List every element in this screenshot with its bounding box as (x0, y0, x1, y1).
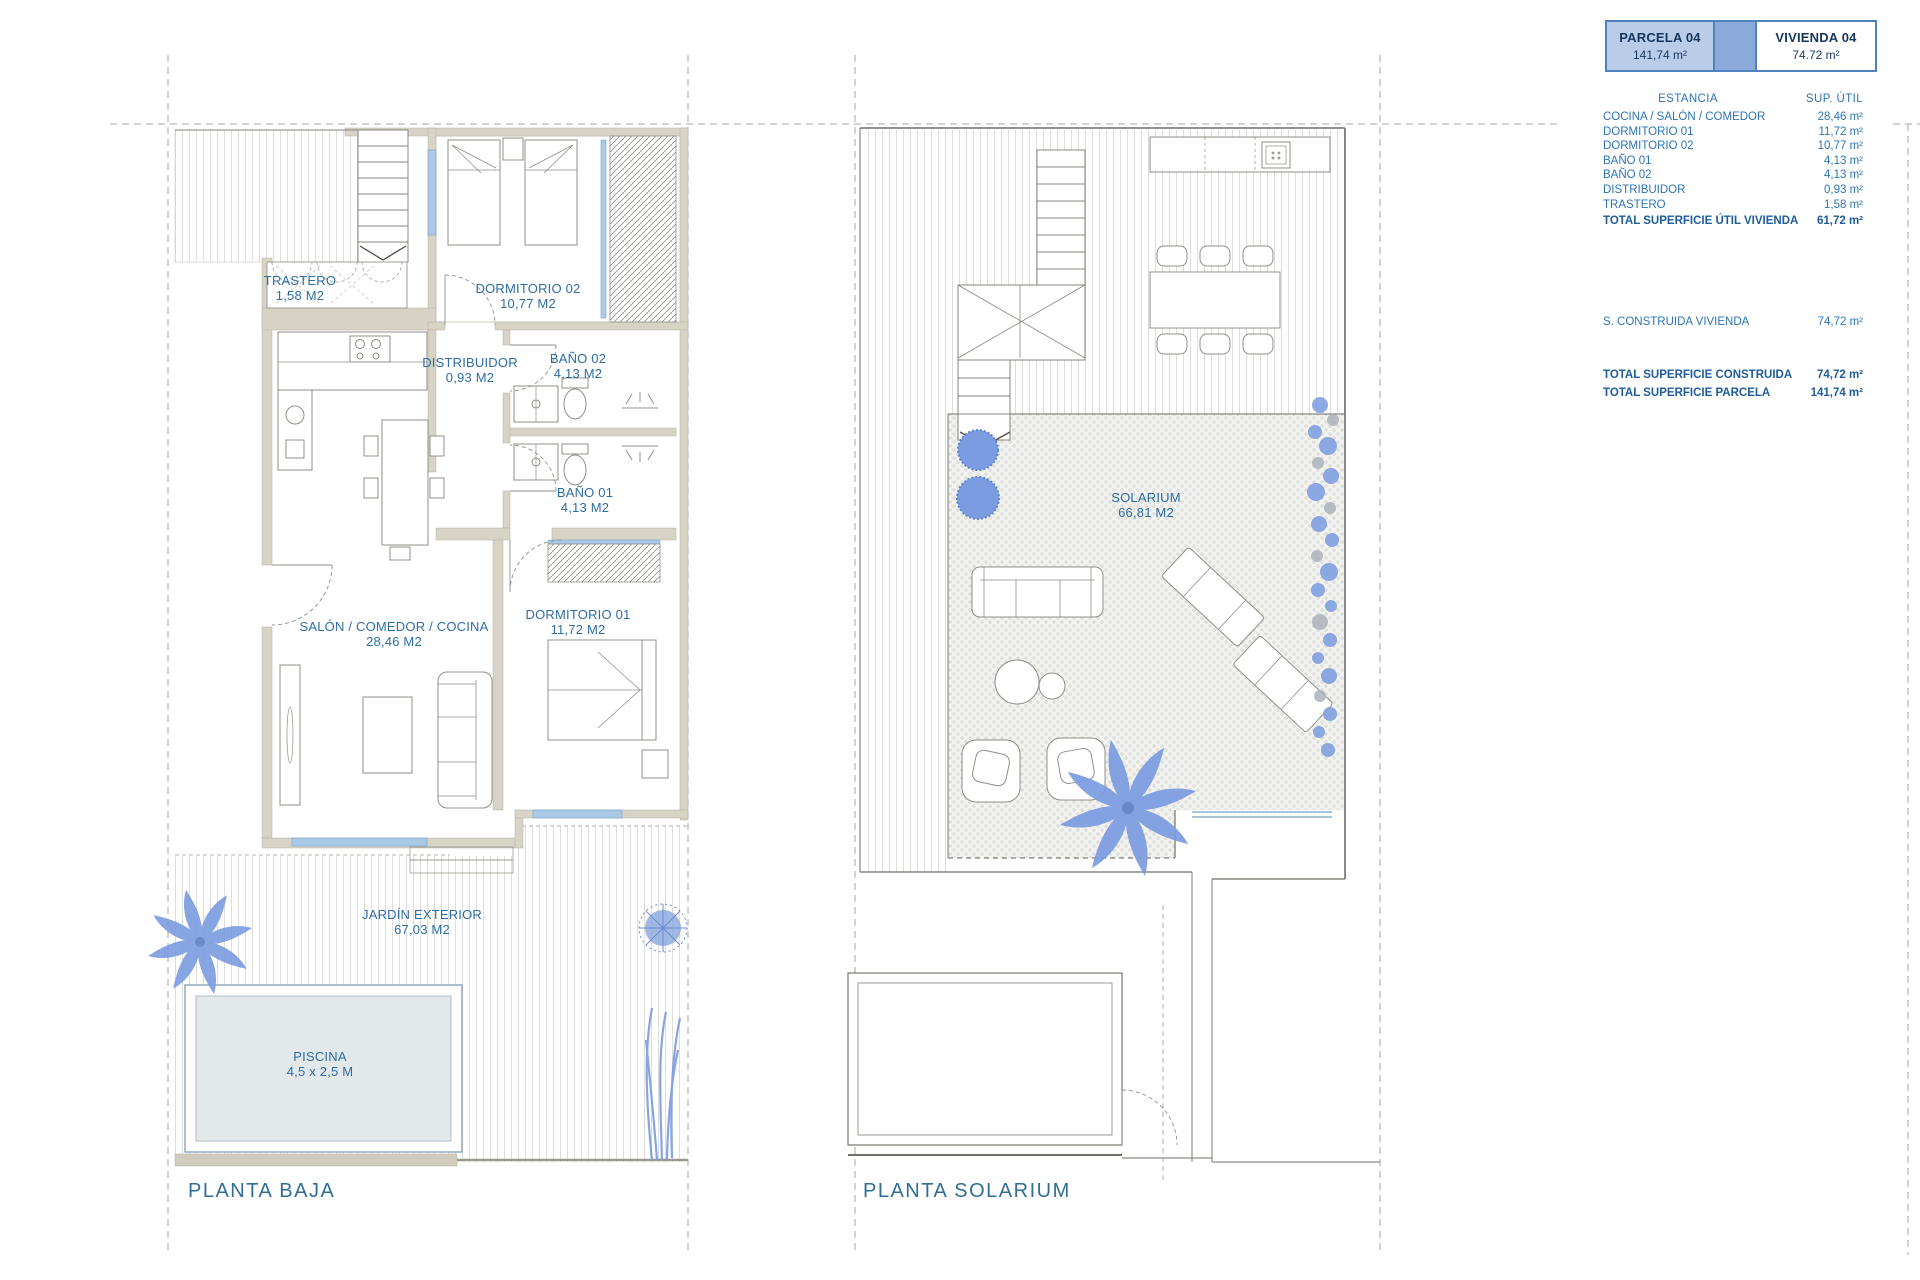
label-distribuidor: DISTRIBUIDOR 0,93 M2 (422, 355, 518, 385)
shower-head (622, 392, 658, 408)
window (533, 810, 622, 818)
table-row: DORMITORIO 02 10,77 m² (1603, 139, 1863, 154)
staircase-ground (358, 130, 408, 262)
room-name: SOLARIUM (1111, 490, 1181, 505)
vivienda-area: 74.72 m² (1757, 48, 1875, 62)
total-util-row: TOTAL SUPERFICIE ÚTIL VIVIENDA 61,72 m² (1603, 213, 1863, 230)
round-table (995, 660, 1039, 704)
label-trastero: TRASTERO 1,58 M2 (264, 273, 336, 303)
label-solarium: SOLARIUM 66,81 M2 (1111, 490, 1181, 520)
toilet (564, 455, 586, 485)
table-row: DISTRIBUIDOR 0,93 m² (1603, 183, 1863, 198)
window (428, 150, 436, 235)
total-parcela-row: TOTAL SUPERFICIE PARCELA 141,74 m² (1603, 384, 1863, 402)
window (292, 838, 427, 846)
planta-baja-title: PLANTA BAJA (188, 1180, 335, 1203)
bathroom-02 (514, 378, 658, 422)
outdoor-counter (1150, 137, 1330, 172)
closet-rail (601, 140, 606, 318)
glass-railing (1192, 812, 1332, 817)
table-row: COCINA / SALÓN / COMEDOR 28,46 m² (1603, 110, 1863, 125)
nightstand (642, 750, 668, 778)
toilet (564, 389, 586, 419)
room-area: 66,81 M2 (1111, 505, 1181, 520)
label-bano02: BAÑO 02 4,13 M2 (550, 351, 606, 381)
room-area: 28,46 M2 (300, 634, 489, 649)
coffee-table (363, 697, 412, 773)
plot-header-box: PARCELA 04 141,74 m² VIVIENDA 04 74.72 m… (1605, 20, 1877, 72)
totals-block: TOTAL SUPERFICIE CONSTRUIDA 74,72 m² TOT… (1603, 366, 1863, 402)
dining-table-ground (364, 420, 444, 560)
pool-void-below (848, 973, 1122, 1145)
room-name: JARDÍN EXTERIOR (362, 907, 482, 922)
room-area: 1,58 M2 (264, 288, 336, 303)
stove (350, 336, 390, 362)
label-piscina: PISCINA 4,5 x 2,5 M (287, 1049, 354, 1079)
tv-unit (280, 665, 300, 805)
bedroom-01 (548, 640, 668, 778)
room-area: 10,77 M2 (476, 296, 581, 311)
vivienda-label: VIVIENDA 04 (1757, 30, 1875, 45)
wardrobe-rail (548, 540, 660, 544)
parcela-cell: PARCELA 04 141,74 m² (1607, 22, 1715, 70)
room-name: TRASTERO (264, 273, 336, 288)
label-bano01: BAÑO 01 4,13 M2 (557, 485, 613, 515)
construida-row: S. CONSTRUIDA VIVIENDA 74,72 m² (1603, 316, 1863, 328)
room-area: 4,13 M2 (557, 500, 613, 515)
room-name: DISTRIBUIDOR (422, 355, 518, 370)
shower-head (622, 446, 658, 462)
room-name: BAÑO 02 (550, 351, 606, 366)
nightstand (503, 138, 523, 160)
label-salon: SALÓN / COMEDOR / COCINA 28,46 M2 (300, 619, 489, 649)
door-swing-solarium (1122, 1090, 1177, 1145)
garden-deck-right (515, 826, 685, 1162)
room-name: PISCINA (287, 1049, 354, 1064)
room-name: DORMITORIO 01 (526, 607, 631, 622)
bathroom-01 (514, 444, 658, 485)
wardrobe-hatched (610, 136, 676, 322)
vivienda-cell: VIVIENDA 04 74.72 m² (1757, 22, 1875, 70)
room-name: BAÑO 01 (557, 485, 613, 500)
room-area: 4,13 M2 (550, 366, 606, 381)
dining-set-solarium (1150, 246, 1280, 354)
sofa (438, 672, 492, 808)
room-area: 11,72 M2 (526, 622, 631, 637)
label-jardin: JARDÍN EXTERIOR 67,03 M2 (362, 907, 482, 937)
room-name: DORMITORIO 02 (476, 281, 581, 296)
bed-single-1 (448, 140, 500, 245)
parcela-area: 141,74 m² (1607, 48, 1713, 62)
room-name: SALÓN / COMEDOR / COCINA (300, 619, 489, 634)
surface-table-header: ESTANCIA SUP. ÚTIL (1603, 92, 1863, 107)
round-table-small (1039, 673, 1065, 699)
label-dormitorio01: DORMITORIO 01 11,72 M2 (526, 607, 631, 637)
col-sup-util: SUP. ÚTIL (1773, 92, 1863, 107)
dining-table (1150, 272, 1280, 328)
surface-table: ESTANCIA SUP. ÚTIL COCINA / SALÓN / COME… (1603, 92, 1863, 230)
room-area: 4,5 x 2,5 M (287, 1064, 354, 1079)
table-row: BAÑO 02 4,13 m² (1603, 168, 1863, 183)
entry-deck (175, 130, 358, 262)
total-construida-row: TOTAL SUPERFICIE CONSTRUIDA 74,72 m² (1603, 366, 1863, 384)
table-row: DORMITORIO 01 11,72 m² (1603, 125, 1863, 140)
shrub-icon (639, 904, 687, 952)
outdoor-sofa (972, 567, 1103, 617)
room-area: 67,03 M2 (362, 922, 482, 937)
col-estancia: ESTANCIA (1603, 92, 1773, 107)
bed-single-2 (525, 140, 577, 245)
label-dormitorio02: DORMITORIO 02 10,77 M2 (476, 281, 581, 311)
planta-solarium-title: PLANTA SOLARIUM (863, 1180, 1071, 1203)
floorplan-sheet: TRASTERO 1,58 M2 DORMITORIO 02 10,77 M2 … (0, 0, 1920, 1280)
wardrobe-hatched-2 (548, 544, 660, 582)
parcela-label: PARCELA 04 (1607, 30, 1713, 45)
header-divider-cell (1715, 22, 1757, 70)
table-row: TRASTERO 1,58 m² (1603, 198, 1863, 213)
table-row: BAÑO 01 4,13 m² (1603, 154, 1863, 169)
toilet-tank (562, 444, 588, 454)
planta-solarium-plan (848, 128, 1380, 1180)
room-area: 0,93 M2 (422, 370, 518, 385)
